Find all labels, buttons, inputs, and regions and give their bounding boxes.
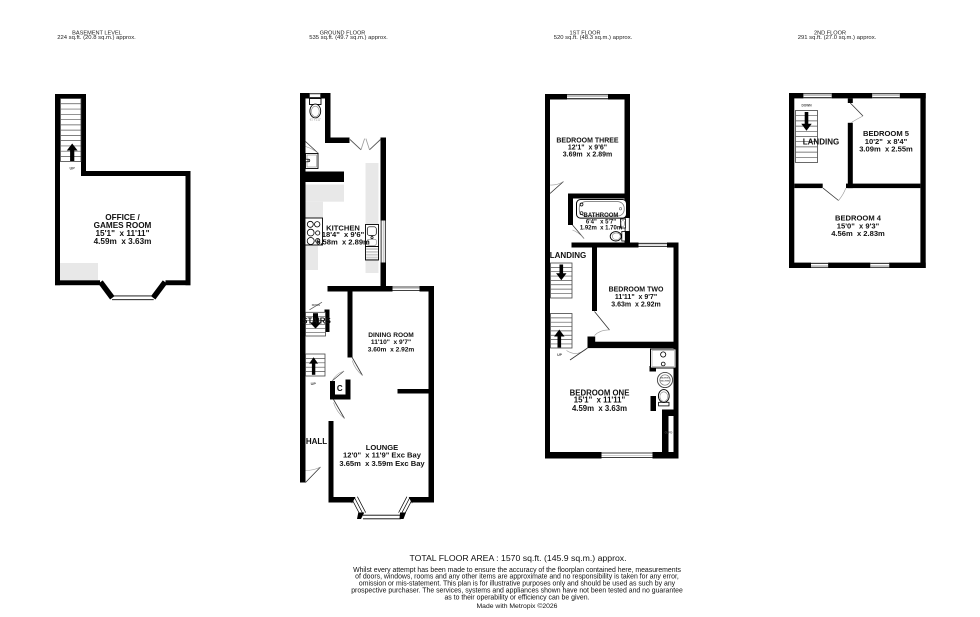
svg-text:DINING ROOM: DINING ROOM [368, 332, 414, 339]
svg-text:WASHING: WASHING [660, 377, 670, 380]
svg-text:DOWN: DOWN [801, 104, 812, 108]
svg-text:3.63m x 2.92m: 3.63m x 2.92m [611, 301, 660, 308]
svg-text:3.69m x 2.89m: 3.69m x 2.89m [563, 151, 612, 158]
svg-text:6'4" x 5'7": 6'4" x 5'7" [586, 219, 616, 225]
svg-text:LANDING: LANDING [550, 251, 586, 260]
svg-text:LANDING: LANDING [803, 137, 839, 146]
svg-text:STAIRS: STAIRS [302, 316, 331, 325]
svg-text:MACHINE: MACHINE [660, 380, 670, 383]
svg-text:BEDROOM TWO: BEDROOM TWO [609, 287, 664, 294]
svg-text:UP: UP [70, 167, 76, 171]
svg-text:UP: UP [557, 353, 563, 357]
svg-text:5.58m x 2.89m: 5.58m x 2.89m [316, 237, 370, 246]
svg-text:BATHROOM: BATHROOM [584, 213, 619, 219]
svg-text:Made with Metropix ©2026: Made with Metropix ©2026 [477, 602, 558, 610]
svg-text:3.60m x 2.92m: 3.60m x 2.92m [368, 346, 415, 353]
svg-text:11'11" x 9'7": 11'11" x 9'7" [615, 294, 657, 301]
svg-text:1.92m x 1.70m: 1.92m x 1.70m [580, 226, 622, 232]
svg-text:DOWN: DOWN [312, 303, 320, 307]
svg-text:as to their operability or eff: as to their operability or efficiency ca… [444, 594, 589, 601]
svg-text:291 sq.ft. (27.0 sq.m.) approx: 291 sq.ft. (27.0 sq.m.) approx. [798, 35, 877, 41]
svg-text:HALL: HALL [306, 437, 327, 446]
svg-text:3.65m x 3.59m Exc Bay: 3.65m x 3.59m Exc Bay [339, 459, 425, 468]
svg-text:BEDROOM THREE: BEDROOM THREE [556, 137, 619, 144]
svg-text:4.59m x 3.63m: 4.59m x 3.63m [94, 237, 152, 246]
svg-text:535 sq.ft. (49.7 sq.m.) approx: 535 sq.ft. (49.7 sq.m.) approx. [309, 35, 388, 41]
svg-text:C: C [337, 384, 343, 393]
svg-text:11'10" x 9'7": 11'10" x 9'7" [371, 339, 411, 346]
svg-text:TOTAL FLOOR AREA : 1570 sq.ft.: TOTAL FLOOR AREA : 1570 sq.ft. (145.9 sq… [409, 553, 626, 563]
svg-text:6'1" x 2'11": 6'1" x 2'11" [310, 120, 321, 122]
svg-text:520 sq.ft. (48.3 sq.m.) approx: 520 sq.ft. (48.3 sq.m.) approx. [554, 35, 633, 41]
svg-text:CUP'D: CUP'D [665, 432, 673, 435]
svg-text:UP: UP [311, 382, 317, 386]
svg-text:224 sq.ft. (20.8 sq.m.) approx: 224 sq.ft. (20.8 sq.m.) approx. [57, 35, 136, 41]
svg-text:3.09m x 2.55m: 3.09m x 2.55m [859, 145, 913, 154]
svg-text:4.59m x 3.63m: 4.59m x 3.63m [572, 404, 627, 413]
svg-text:4.56m x 2.83m: 4.56m x 2.83m [831, 229, 885, 238]
